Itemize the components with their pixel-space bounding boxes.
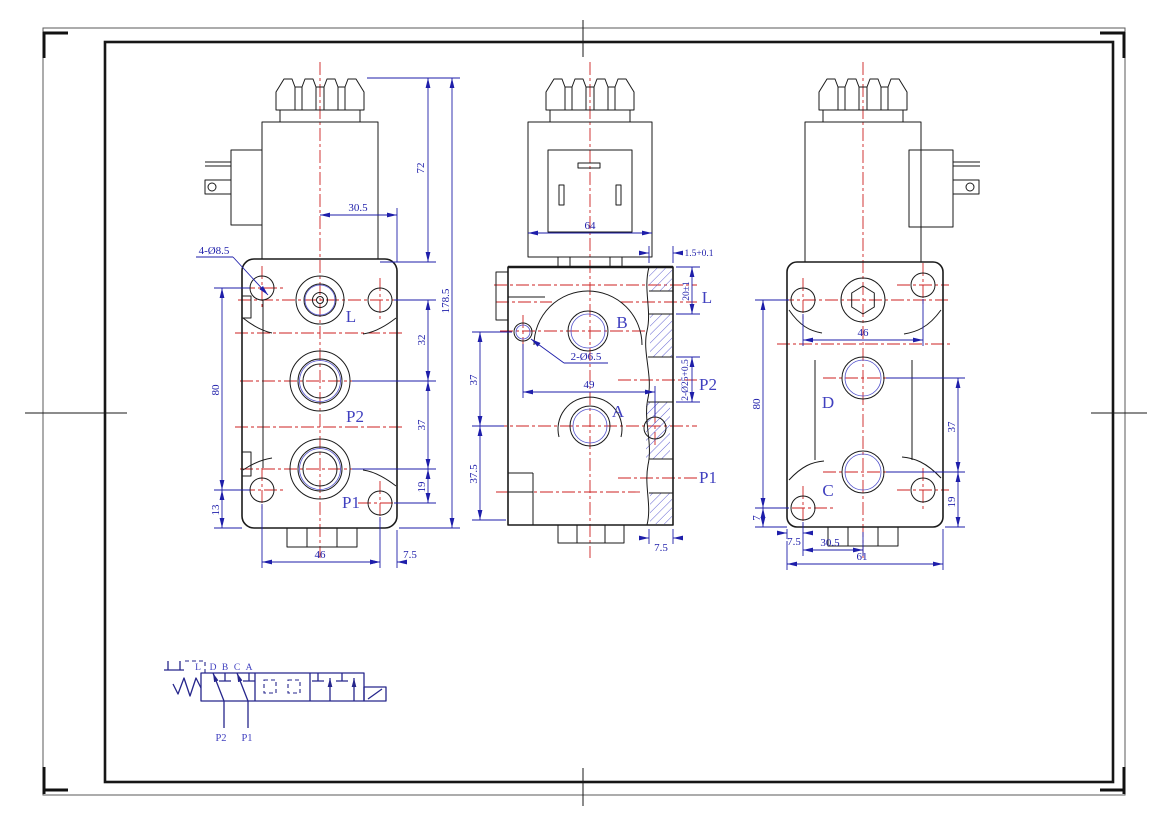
svg-text:32: 32 <box>416 335 428 346</box>
section-dimensions: 64 1.5+0.1 20±1 2-Ø25+0.5 49 <box>468 220 714 554</box>
section-left-tab <box>496 272 508 320</box>
front-ports <box>250 276 392 515</box>
svg-text:72: 72 <box>415 163 427 174</box>
hatch-region-1 <box>649 268 672 291</box>
svg-text:20±1: 20±1 <box>682 281 692 301</box>
front-body-steps <box>242 296 263 476</box>
svg-text:49: 49 <box>584 379 596 391</box>
svg-text:2-Ø25+0.5: 2-Ø25+0.5 <box>681 359 691 401</box>
section-label-p2: P2 <box>699 375 717 394</box>
svg-text:80: 80 <box>210 384 222 396</box>
svg-text:178.5: 178.5 <box>440 288 452 313</box>
front-body-contours <box>243 318 396 486</box>
rear-dimensions: 46 37 19 80 7 <box>751 299 965 570</box>
front-connector <box>205 150 262 225</box>
svg-text:1.5+0.1: 1.5+0.1 <box>684 249 713 259</box>
front-connector-pin-hole <box>208 183 216 191</box>
dim-front-span-p1-base: 19 <box>394 469 436 503</box>
dim-section-spigot: 1.5+0.1 <box>640 246 714 263</box>
svg-text:46: 46 <box>315 549 327 561</box>
schematic-supply-stubs <box>224 701 248 728</box>
section-label-l: L <box>702 288 712 307</box>
dim-rear-foot: 7 <box>751 508 787 527</box>
dim-front-overall-height: 178.5 <box>399 78 460 528</box>
dim-front-coil-height: 72 <box>367 78 460 262</box>
svg-text:2-Ø6.5: 2-Ø6.5 <box>571 351 602 363</box>
svg-text:61: 61 <box>857 551 868 563</box>
svg-text:37: 37 <box>946 421 958 433</box>
svg-text:19: 19 <box>416 481 428 493</box>
connector-slot-right <box>616 185 621 205</box>
callout-section-pilot-holes: 2-Ø6.5 <box>531 339 608 363</box>
schematic-position-dividers <box>255 673 310 701</box>
schematic-label-d: D <box>210 663 217 673</box>
rear-connector-pin-hole <box>966 183 974 191</box>
corner-mark-tl <box>43 32 68 58</box>
rear-solenoid <box>805 79 980 262</box>
schematic-spring <box>173 678 201 696</box>
front-hex-nut <box>287 528 357 547</box>
section-label-p1: P1 <box>699 468 717 487</box>
schematic-solenoid-actuator <box>364 687 386 701</box>
svg-text:30.5: 30.5 <box>820 537 840 549</box>
rear-body-outline <box>787 262 943 527</box>
section-view: B A L P2 P1 64 1.5+0.1 20±1 <box>468 62 717 558</box>
schematic-position-2 <box>264 680 300 693</box>
front-solenoid <box>205 79 378 259</box>
front-label-p2: P2 <box>346 407 364 426</box>
section-label-a: A <box>612 402 625 421</box>
dim-section-span-lower: 37.5 <box>468 426 506 520</box>
schematic-label-b: B <box>222 663 228 673</box>
inner-border <box>105 42 1113 782</box>
hatch-region-2 <box>650 314 672 357</box>
schematic-label-c: C <box>234 663 240 673</box>
rear-connector <box>909 150 980 227</box>
rear-label-c: C <box>822 481 833 500</box>
dim-section-coil-width: 64 <box>528 220 652 233</box>
dim-front-coil-offset: 30.5 <box>320 202 397 262</box>
svg-text:30.5: 30.5 <box>348 202 368 214</box>
hydraulic-schematic: L D B C A P2 P1 <box>164 661 386 744</box>
dim-rear-hole-span: 80 <box>751 300 789 508</box>
svg-text:46: 46 <box>858 327 870 339</box>
front-view: L P2 P1 30.5 72 178.5 32 <box>196 62 460 568</box>
svg-text:37: 37 <box>468 374 480 386</box>
svg-text:7: 7 <box>751 515 763 521</box>
section-break-line <box>646 267 650 525</box>
front-label-p1: P1 <box>342 493 360 512</box>
svg-text:7.5: 7.5 <box>654 542 668 554</box>
dim-rear-width: 61 <box>787 529 943 570</box>
connector-slot-left <box>559 185 564 205</box>
rear-view: D C 46 37 19 80 <box>751 62 980 570</box>
section-coil-foot-right <box>610 257 622 267</box>
dim-section-port-bore: 2-Ø25+0.5 <box>676 357 700 402</box>
dim-section-edge-offset: 7.5 <box>641 529 681 554</box>
rear-label-d: D <box>822 393 834 412</box>
schematic-position-1 <box>213 673 255 701</box>
svg-text:7.5: 7.5 <box>787 536 801 548</box>
section-coil-foot-left <box>558 257 570 267</box>
dim-section-spigot-depth: 20±1 <box>676 267 700 314</box>
dim-section-span-upper: 37 <box>468 332 512 426</box>
section-hex-nut <box>558 525 624 543</box>
outer-border <box>43 28 1125 795</box>
drawing-sheet: L P2 P1 30.5 72 178.5 32 <box>0 0 1169 826</box>
corner-mark-bl <box>43 767 68 794</box>
rear-body <box>787 262 943 546</box>
svg-text:80: 80 <box>751 398 763 410</box>
schematic-label-p1: P1 <box>241 733 252 744</box>
svg-text:7.5: 7.5 <box>403 549 417 561</box>
schematic-label-a: A <box>246 663 253 673</box>
svg-text:4-Ø8.5: 4-Ø8.5 <box>199 245 230 257</box>
connector-slot-center <box>578 163 600 168</box>
schematic-position-3 <box>312 673 354 701</box>
schematic-tank-symbol <box>164 661 184 670</box>
svg-text:37: 37 <box>416 419 428 431</box>
svg-text:37.5: 37.5 <box>468 464 480 484</box>
dim-front-span-l-p2: 32 <box>352 300 436 381</box>
section-cut-strip <box>644 267 673 525</box>
section-centerlines <box>494 62 700 558</box>
dim-front-hole-width: 46 <box>262 504 380 568</box>
dim-front-base-offset: 13 <box>210 490 242 528</box>
callout-front-corner-holes: 4-Ø8.5 <box>196 245 268 295</box>
schematic-label-drain: L <box>195 663 201 673</box>
svg-text:64: 64 <box>585 220 597 232</box>
front-label-l: L <box>346 307 356 326</box>
dim-rear-span-d-c: 37 <box>886 378 965 472</box>
svg-text:13: 13 <box>210 504 222 516</box>
dim-rear-center-offset: 30.5 <box>803 532 863 556</box>
hatch-region-4 <box>650 493 672 524</box>
dim-front-span-p2-p1: 37 <box>352 381 436 469</box>
section-label-b: B <box>616 313 627 332</box>
dim-rear-span-c-base: 19 <box>945 472 965 527</box>
svg-text:19: 19 <box>946 496 958 508</box>
schematic-label-p2: P2 <box>215 733 226 744</box>
front-centerlines <box>235 62 402 558</box>
